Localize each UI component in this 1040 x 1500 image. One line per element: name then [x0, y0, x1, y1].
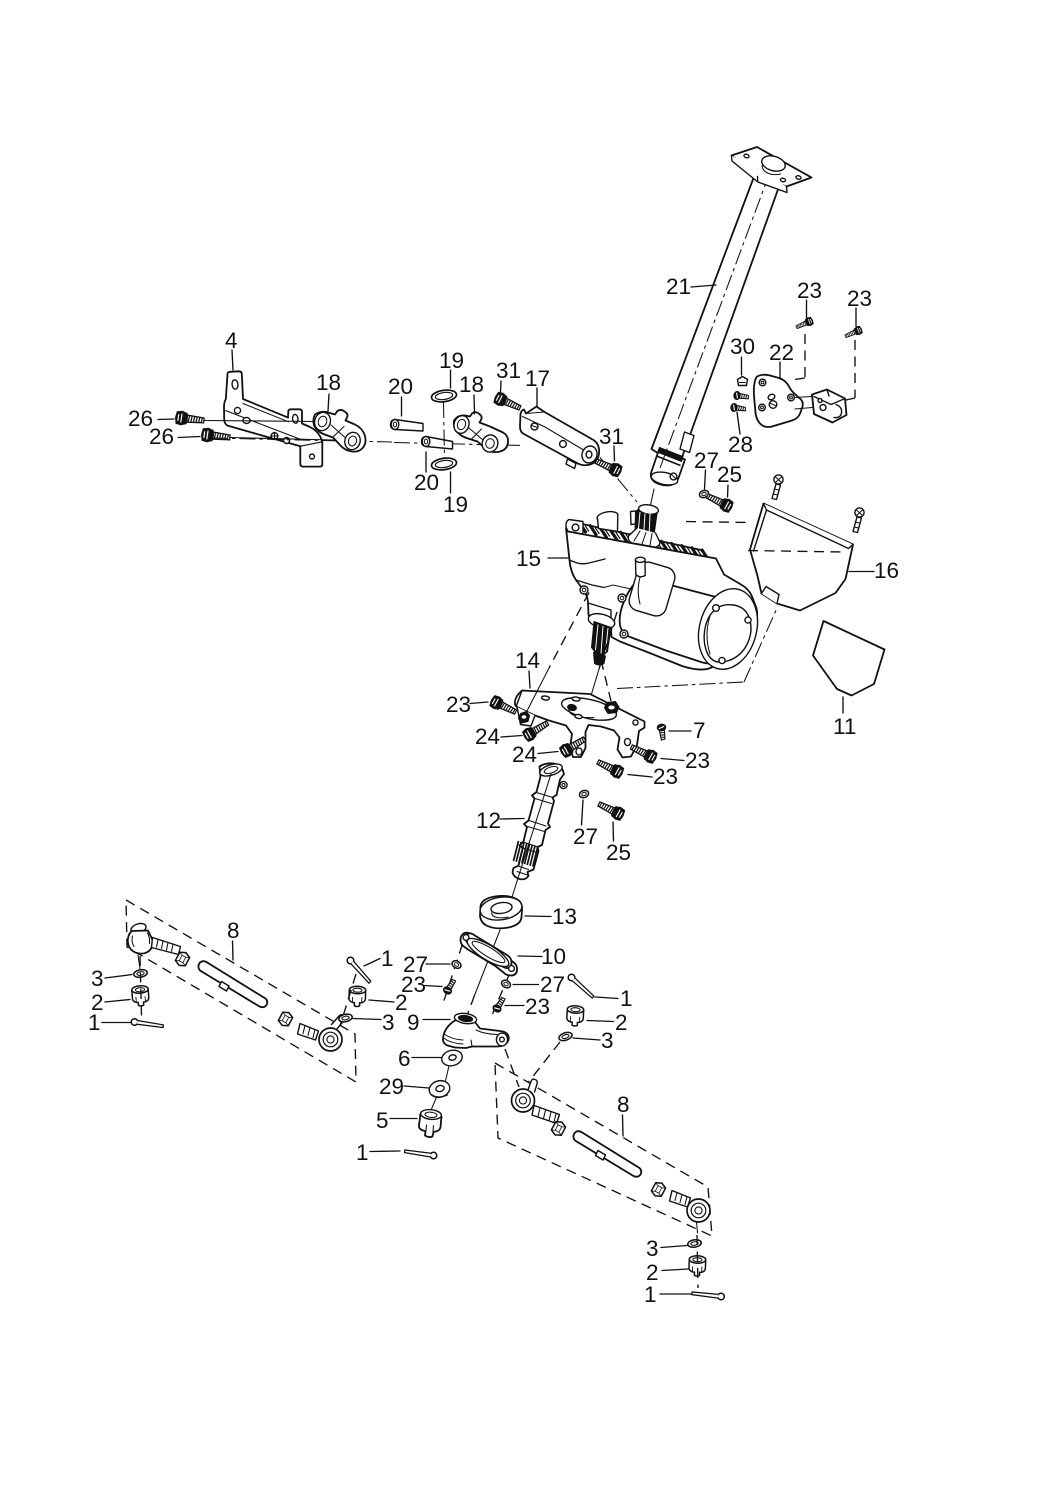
svg-text:22: 22 — [769, 340, 794, 365]
svg-text:2: 2 — [615, 1010, 628, 1035]
svg-text:27: 27 — [573, 824, 598, 849]
svg-text:1: 1 — [620, 986, 633, 1011]
svg-text:31: 31 — [599, 424, 624, 449]
svg-text:8: 8 — [227, 918, 240, 943]
svg-text:12: 12 — [476, 808, 501, 833]
svg-text:25: 25 — [606, 840, 631, 865]
svg-text:19: 19 — [439, 348, 464, 373]
svg-text:5: 5 — [376, 1108, 389, 1133]
svg-text:16: 16 — [874, 558, 899, 583]
svg-text:29: 29 — [379, 1074, 404, 1099]
svg-text:24: 24 — [512, 742, 537, 767]
svg-text:1: 1 — [88, 1010, 101, 1035]
svg-text:23: 23 — [653, 764, 678, 789]
svg-text:24: 24 — [475, 724, 500, 749]
svg-text:21: 21 — [666, 274, 691, 299]
svg-text:18: 18 — [459, 372, 484, 397]
svg-text:1: 1 — [644, 1282, 657, 1307]
svg-text:3: 3 — [91, 966, 104, 991]
svg-text:23: 23 — [685, 748, 710, 773]
svg-text:23: 23 — [525, 994, 550, 1019]
svg-text:4: 4 — [225, 328, 238, 353]
svg-text:3: 3 — [382, 1010, 395, 1035]
svg-text:30: 30 — [730, 334, 755, 359]
svg-text:10: 10 — [541, 944, 566, 969]
svg-text:17: 17 — [525, 366, 550, 391]
svg-text:15: 15 — [516, 546, 541, 571]
svg-text:13: 13 — [552, 904, 577, 929]
svg-text:14: 14 — [515, 648, 540, 673]
svg-text:19: 19 — [443, 492, 468, 517]
svg-text:20: 20 — [414, 470, 439, 495]
svg-text:2: 2 — [395, 990, 408, 1015]
svg-text:9: 9 — [407, 1010, 420, 1035]
svg-text:23: 23 — [797, 278, 822, 303]
svg-text:11: 11 — [833, 714, 856, 739]
svg-text:23: 23 — [847, 286, 872, 311]
svg-text:28: 28 — [728, 432, 753, 457]
svg-text:3: 3 — [646, 1236, 659, 1261]
svg-text:20: 20 — [388, 374, 413, 399]
svg-text:7: 7 — [693, 718, 706, 743]
svg-text:1: 1 — [356, 1140, 369, 1165]
svg-text:1: 1 — [381, 946, 394, 971]
svg-text:27: 27 — [694, 448, 719, 473]
svg-text:8: 8 — [617, 1092, 630, 1117]
svg-text:18: 18 — [316, 370, 341, 395]
svg-text:26: 26 — [149, 424, 174, 449]
svg-text:23: 23 — [446, 692, 471, 717]
svg-text:6: 6 — [398, 1046, 411, 1071]
svg-text:25: 25 — [717, 462, 742, 487]
svg-text:3: 3 — [601, 1028, 614, 1053]
svg-text:31: 31 — [496, 358, 521, 383]
